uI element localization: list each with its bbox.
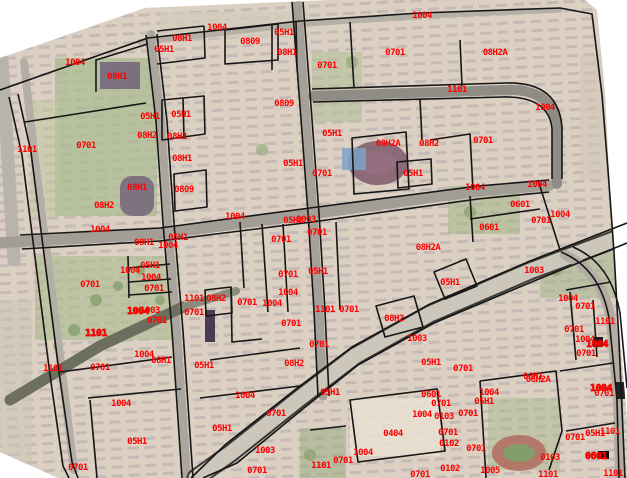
parcel-label[interactable]: 1101 xyxy=(43,364,63,374)
parcel-label[interactable]: 0701 xyxy=(458,409,478,419)
parcel-label[interactable]: 08H2A xyxy=(376,139,402,149)
parcel-label[interactable]: 05H1 xyxy=(283,159,303,169)
parcel-label[interactable]: 08H2 xyxy=(284,359,304,369)
parcel-label[interactable]: 0701 xyxy=(453,364,473,374)
parcel-label[interactable]: 05H1 xyxy=(194,361,214,371)
parcel-label[interactable]: 1003 xyxy=(407,334,427,344)
parcel-label[interactable]: 0404 xyxy=(383,429,404,439)
parcel-label[interactable]: 0701 xyxy=(564,325,584,335)
parcel-label[interactable]: 0701 xyxy=(90,363,110,373)
parcel-label[interactable]: 05H1 xyxy=(474,397,494,407)
parcel-label[interactable]: 0601 xyxy=(479,223,499,233)
terrain-patch xyxy=(113,281,123,291)
parcel-label[interactable]: 1004 xyxy=(527,180,548,190)
parcel-label[interactable]: 0701 xyxy=(68,463,88,473)
parcel-label[interactable]: 1003 xyxy=(296,215,316,225)
parcel-label[interactable]: 0701 xyxy=(576,349,596,359)
parcel-label[interactable]: 0701 xyxy=(307,228,327,238)
parcel-label[interactable]: 0701 xyxy=(309,340,329,350)
parcel-label[interactable]: 08H1 xyxy=(172,34,192,44)
parcel-label[interactable]: 1101 xyxy=(595,317,615,327)
parcel-label[interactable]: 1004 xyxy=(141,273,162,283)
parcel-label[interactable]: 1003 xyxy=(255,446,275,456)
parcel-label[interactable]: 1004 xyxy=(278,288,299,298)
parcel-label[interactable]: 0601 xyxy=(585,451,608,462)
parcel-label[interactable]: 0701 xyxy=(317,61,337,71)
parcel-label[interactable]: 05H1 xyxy=(308,267,328,277)
terrain-patch xyxy=(342,148,366,170)
parcel-label[interactable]: 1004 xyxy=(412,410,433,420)
parcel-label[interactable]: 05H1 xyxy=(322,129,342,139)
terrain-patch xyxy=(120,176,154,216)
parcel-label[interactable]: 1005 xyxy=(480,466,500,476)
parcel-label[interactable]: 0701 xyxy=(575,302,595,312)
parcel-label[interactable]: 1101 xyxy=(447,85,467,95)
parcel-label[interactable]: 0701 xyxy=(266,409,286,419)
parcel-label[interactable]: 1004 xyxy=(207,23,228,33)
parcel-label[interactable]: 05H1 xyxy=(212,424,232,434)
parcel-label[interactable]: 1004 xyxy=(65,58,86,68)
parcel-label[interactable]: 05H1 xyxy=(421,358,441,368)
parcel-label[interactable]: 08H2 xyxy=(206,294,226,304)
parcel-label[interactable]: 1101 xyxy=(85,328,108,339)
parcel-label[interactable]: 1004 xyxy=(262,299,283,309)
parcel-label[interactable]: 0103 xyxy=(540,453,560,463)
parcel-label[interactable]: 05H1 xyxy=(171,110,191,120)
parcel-label[interactable]: 0701 xyxy=(339,305,359,315)
parcel-label[interactable]: 0701 xyxy=(278,270,298,280)
parcel-label[interactable]: 1004 xyxy=(550,210,571,220)
parcel-label[interactable]: 0103 xyxy=(434,412,454,422)
parcel-label[interactable]: 1004 xyxy=(90,225,111,235)
parcel-label[interactable]: 0701 xyxy=(80,280,100,290)
parcel-label[interactable]: 08H2 xyxy=(94,201,114,211)
parcel-label[interactable]: 0701 xyxy=(431,399,451,409)
terrain-patch xyxy=(68,324,80,336)
parcel-label[interactable]: 1101 xyxy=(184,294,204,304)
parcel-label[interactable]: 0701 xyxy=(466,444,486,454)
parcel-label[interactable]: 1004 xyxy=(235,391,256,401)
terrain-patch xyxy=(155,295,165,305)
parcel-label[interactable]: 08H2A xyxy=(526,375,552,385)
parcel-label[interactable]: 0701 xyxy=(531,216,551,226)
parcel-label[interactable]: 0701 xyxy=(281,319,301,329)
parcel-label[interactable]: 0701 xyxy=(76,141,96,151)
parcel-label[interactable]: 1004 xyxy=(465,183,486,193)
parcel-label[interactable]: 0809 xyxy=(274,99,294,109)
parcel-label[interactable]: 0809 xyxy=(240,37,260,47)
parcel-label[interactable]: 08H1 xyxy=(277,48,297,58)
parcel-label[interactable]: 1004 xyxy=(353,448,374,458)
parcel-label[interactable]: 05H1 xyxy=(140,112,160,122)
parcel-label[interactable]: 0701 xyxy=(312,169,332,179)
satellite-imagery xyxy=(0,0,627,478)
parcel-label[interactable]: 0701 xyxy=(565,433,585,443)
terrain-patch xyxy=(304,449,316,461)
parcel-label[interactable]: 1004 xyxy=(111,399,132,409)
parcel-label[interactable]: 08H1 xyxy=(134,238,154,248)
parcel-label[interactable]: 0102 xyxy=(440,464,460,474)
parcel-label[interactable]: 0701 xyxy=(410,470,430,478)
parcel-label[interactable]: 0701 xyxy=(184,308,204,318)
parcel-label[interactable]: 05H1 xyxy=(440,278,460,288)
parcel-label[interactable]: 0701 xyxy=(594,389,614,399)
parcel-label[interactable]: 05H1 xyxy=(127,437,147,447)
parcel-label[interactable]: 1003 xyxy=(524,266,544,276)
parcel-label[interactable]: 0701 xyxy=(438,428,458,438)
parcel-label[interactable]: 05H1 xyxy=(140,261,160,271)
parcel-label[interactable]: 05H1 xyxy=(168,233,188,243)
parcel-label[interactable]: 08H1 xyxy=(172,154,192,164)
parcel-label[interactable]: 0701 xyxy=(247,466,267,476)
parcel-label[interactable]: 0809 xyxy=(174,185,194,195)
parcel-label[interactable]: 0701 xyxy=(271,235,291,245)
terrain-patch xyxy=(503,444,535,462)
parcel-label[interactable]: 1101 xyxy=(17,145,37,155)
parcel-label[interactable]: 0701 xyxy=(147,316,167,326)
parcel-label[interactable]: 1004 xyxy=(120,266,141,276)
parcel-label[interactable]: 1101 xyxy=(600,427,620,437)
parcel-label[interactable]: 1101 xyxy=(538,470,558,478)
parcel-label[interactable]: 1101 xyxy=(603,469,623,478)
parcel-label[interactable]: 08H1 xyxy=(107,72,127,82)
parcel-label[interactable]: 08H2 xyxy=(167,132,187,142)
parcel-label[interactable]: 0701 xyxy=(473,136,493,146)
parcel-label[interactable]: 0601 xyxy=(510,200,530,210)
parcel-label[interactable]: 08H2A xyxy=(483,48,509,58)
parcel-boundary-line xyxy=(128,256,129,298)
parcel-label[interactable]: 05H1 xyxy=(320,388,340,398)
parcel-label[interactable]: 0102 xyxy=(439,439,459,449)
parcel-label[interactable]: 0701 xyxy=(144,284,164,294)
parcel-label[interactable]: 05H1 xyxy=(274,28,294,38)
parcel-label[interactable]: 08H1 xyxy=(127,183,147,193)
cadastral-map[interactable]: 10041004100408H105H1080905H108H108H2A070… xyxy=(0,0,627,478)
parcel-label[interactable]: 1101 xyxy=(311,461,331,471)
parcel-label[interactable]: 1003 xyxy=(140,306,160,316)
parcel-label[interactable]: 0701 xyxy=(237,298,257,308)
parcel-label[interactable]: 1101 xyxy=(315,305,335,315)
parcel-label[interactable]: 05H1 xyxy=(403,169,423,179)
parcel-label[interactable]: 08H2A xyxy=(416,243,442,253)
terrain-patch xyxy=(90,294,102,306)
parcel-boundary-line xyxy=(296,22,297,68)
parcel-label[interactable]: 0701 xyxy=(333,456,353,466)
parcel-label[interactable]: 08H2 xyxy=(419,139,439,149)
parcel-label[interactable]: 0701 xyxy=(385,48,405,58)
parcel-label[interactable]: 08H2 xyxy=(137,131,157,141)
parcel-label[interactable]: 1004 xyxy=(412,11,433,21)
parcel-label[interactable]: 1004 xyxy=(535,103,556,113)
terrain-patch xyxy=(256,144,268,156)
parcel-label[interactable]: 1004 xyxy=(225,212,246,222)
parcel-label[interactable]: 08H2 xyxy=(384,314,404,324)
parcel-label[interactable]: 05H1 xyxy=(154,45,174,55)
parcel-label[interactable]: 08H1 xyxy=(151,356,171,366)
map-svg: 10041004100408H105H1080905H108H108H2A070… xyxy=(0,0,627,478)
